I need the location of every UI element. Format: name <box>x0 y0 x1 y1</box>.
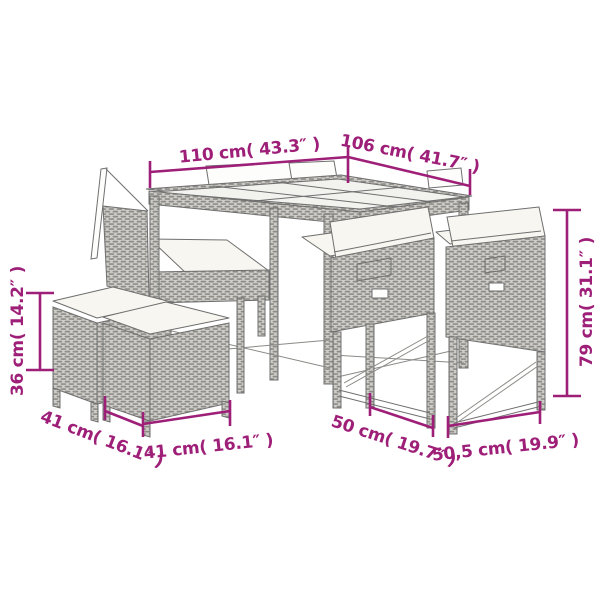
right-chair-1 <box>330 207 435 428</box>
under-table-posts <box>237 296 265 393</box>
chair-stretcher <box>339 390 430 413</box>
left-chair-back-panel <box>103 206 149 297</box>
stool-side-right <box>150 323 229 421</box>
stool-leg <box>222 401 229 418</box>
stool-side-left <box>103 323 150 421</box>
left-chair-seat-cushion <box>150 239 269 274</box>
dimension-label-chair-width: 50,5 cm( 19.9″ ) <box>431 430 580 465</box>
stool-leg <box>91 402 98 422</box>
chair-brace <box>346 340 430 387</box>
label-tag <box>372 289 388 298</box>
product-dimension-diagram: 110 cm( 43.3″ ) 106 cm( 41.7″ ) 79 cm( 3… <box>0 0 600 600</box>
furniture-line-art: 110 cm( 43.3″ ) 106 cm( 41.7″ ) 79 cm( 3… <box>0 0 600 600</box>
chair-back-box <box>446 236 545 352</box>
dimension-label-chair-height: 79 cm( 31.1″ ) <box>577 237 597 367</box>
rear-chair-frame-line <box>106 169 148 211</box>
chair-leg <box>449 337 457 434</box>
dimension-label-stool-height: 36 cm( 14.2″ ) <box>8 266 28 396</box>
chair-brace <box>456 362 536 418</box>
chair-leg <box>258 296 265 336</box>
dimension-label-stool-width: 41 cm( 16.1″ ) <box>143 430 274 463</box>
chair-stretcher <box>339 396 430 419</box>
chair-leg <box>237 298 244 393</box>
dimension-chair-height: 79 cm( 31.1″ ) <box>553 210 597 396</box>
right-chair-2 <box>446 207 545 434</box>
stool-leg <box>53 388 60 408</box>
dimension-stool-height: 36 cm( 14.2″ ) <box>8 266 54 396</box>
cross-brace <box>333 355 464 363</box>
left-chair-seat-box <box>151 270 269 303</box>
label-tag <box>489 283 504 291</box>
chair-leg <box>427 313 435 428</box>
